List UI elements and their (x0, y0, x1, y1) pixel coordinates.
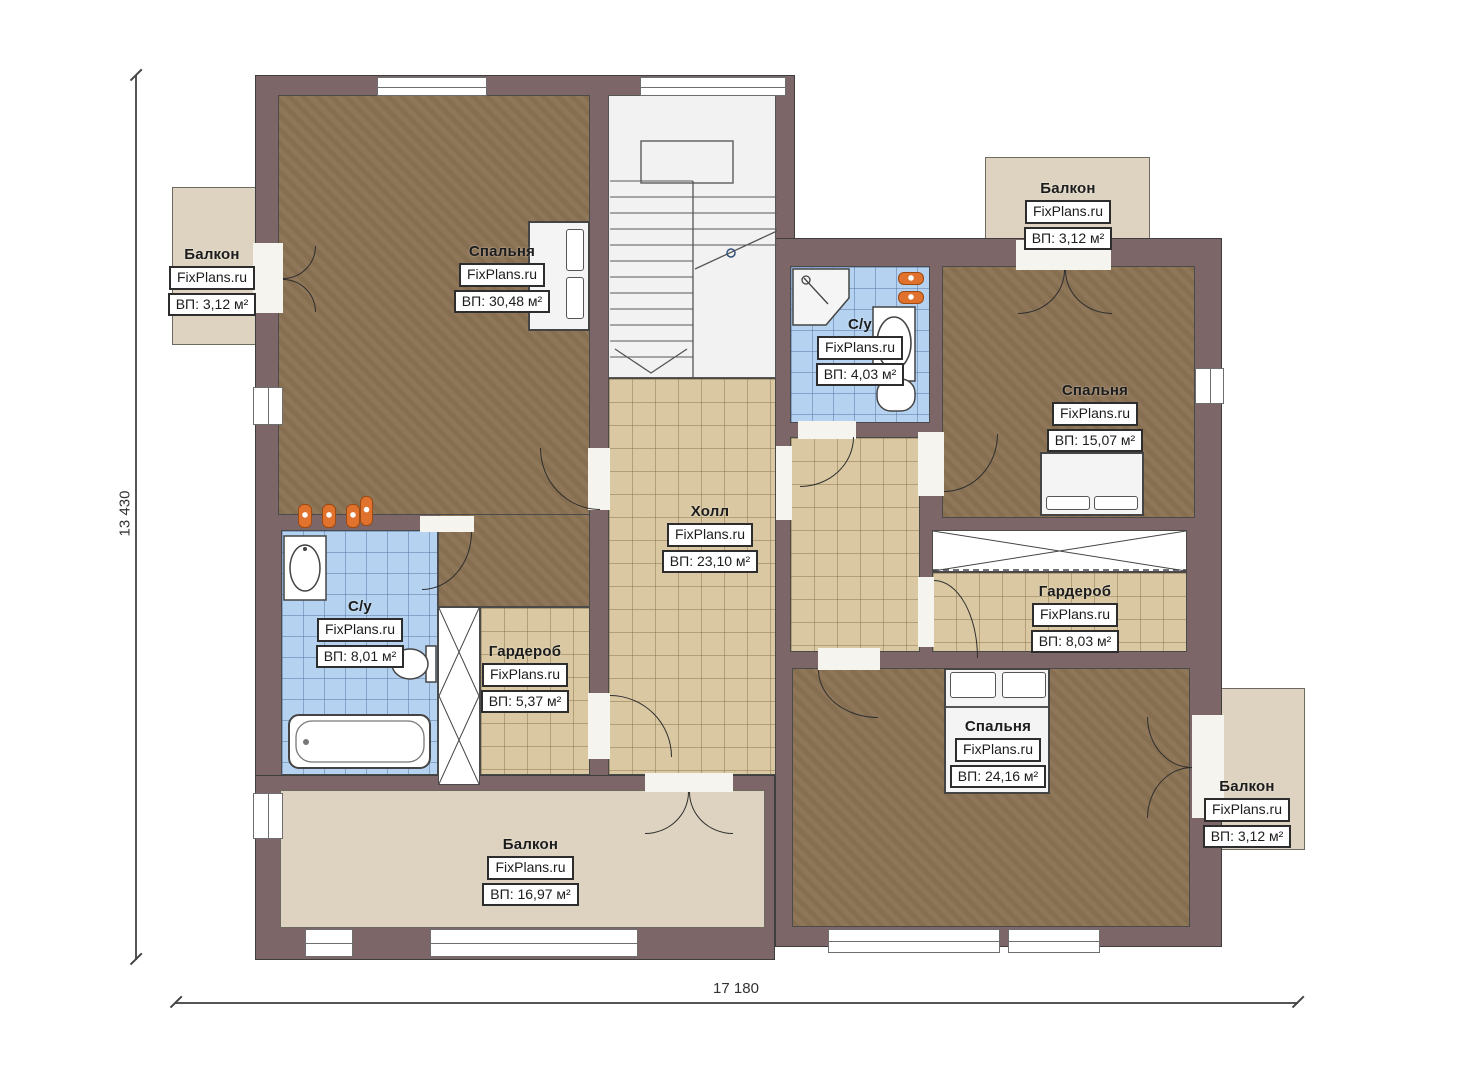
watermark: FixPlans.ru (1032, 603, 1118, 627)
dimension-height-label: 13 430 (117, 474, 134, 554)
towel-heater-icon (360, 496, 373, 526)
room-area: ВП: 23,10 м² (662, 550, 758, 574)
hall-passage-opening (776, 446, 792, 520)
room-name: Спальня (1035, 382, 1155, 399)
watermark: FixPlans.ru (1204, 798, 1290, 822)
dimension-line-horizontal (175, 1002, 1298, 1004)
room-area: ВП: 30,48 м² (454, 290, 550, 314)
pillow-icon (566, 229, 584, 271)
room-name: Холл (655, 503, 765, 520)
watermark: FixPlans.ru (817, 336, 903, 360)
room-name: Гардероб (470, 643, 580, 660)
room-name: С/у (800, 316, 920, 333)
bathroom-left-door-opening (420, 516, 474, 532)
room-area: ВП: 3,12 м² (1203, 825, 1292, 849)
room-label-balcony-top-right: Балкон FixPlans.ru ВП: 3,12 м² (1008, 180, 1128, 253)
window (377, 77, 487, 96)
room-name: Спальня (437, 243, 567, 260)
room-area: ВП: 24,16 м² (950, 765, 1046, 789)
room-area: ВП: 5,37 м² (481, 690, 570, 714)
closet-x-icon (933, 531, 1186, 571)
pillow-icon (566, 277, 584, 319)
room-label-bedroom-right: Спальня FixPlans.ru ВП: 15,07 м² (1035, 382, 1155, 455)
room-area: ВП: 4,03 м² (816, 363, 905, 387)
bathtub-icon (288, 714, 432, 770)
room-label-wardrobe-right: Гардероб FixPlans.ru ВП: 8,03 м² (1015, 583, 1135, 656)
room-name: Балкон (1192, 778, 1302, 795)
room-area: ВП: 3,12 м² (1024, 227, 1113, 251)
window (1008, 929, 1100, 953)
towel-heater-icon (898, 272, 924, 285)
bedroom-bottom-door-opening (818, 648, 880, 670)
watermark: FixPlans.ru (459, 263, 545, 287)
pillow-icon (1002, 672, 1046, 698)
watermark: FixPlans.ru (1025, 200, 1111, 224)
room-area: ВП: 3,12 м² (168, 293, 257, 317)
wardrobe-right-door-opening (918, 577, 934, 647)
towel-heater-icon (346, 504, 360, 528)
room-label-balcony-bottom-right: Балкон FixPlans.ru ВП: 3,12 м² (1192, 778, 1302, 851)
watermark: FixPlans.ru (317, 618, 403, 642)
blanket-line (946, 706, 1048, 708)
towel-heater-icon (898, 291, 924, 304)
bedroom-right-door-opening (918, 432, 944, 496)
sink-icon (283, 535, 327, 601)
pillow-icon (950, 672, 996, 698)
room-area: ВП: 16,97 м² (482, 883, 578, 907)
pillow-icon (1094, 496, 1138, 510)
room-label-balcony-left: Балкон FixPlans.ru ВП: 3,12 м² (152, 246, 272, 319)
window (430, 929, 638, 957)
window (305, 929, 353, 957)
watermark: FixPlans.ru (955, 738, 1041, 762)
room-label-bathroom-left: С/у FixPlans.ru ВП: 8,01 м² (305, 598, 415, 671)
room-name: Балкон (1008, 180, 1128, 197)
room-label-hall: Холл FixPlans.ru ВП: 23,10 м² (655, 503, 765, 576)
watermark: FixPlans.ru (667, 523, 753, 547)
room-area: ВП: 8,01 м² (316, 645, 405, 669)
room-name: Балкон (468, 836, 593, 853)
dimension-width-label: 17 180 (686, 980, 786, 997)
window (253, 793, 283, 839)
staircase (608, 95, 776, 378)
floor-plan: Спальня FixPlans.ru ВП: 30,48 м² С/у Fix… (0, 0, 1473, 1080)
room-label-bathroom-top: С/у FixPlans.ru ВП: 4,03 м² (800, 316, 920, 389)
watermark: FixPlans.ru (1052, 402, 1138, 426)
towel-heater-icon (322, 504, 336, 528)
room-label-bedroom-main: Спальня FixPlans.ru ВП: 30,48 м² (437, 243, 567, 316)
watermark: FixPlans.ru (487, 856, 573, 880)
wardrobe-small-door-opening (588, 693, 610, 759)
balcony-bottom-door-opening (645, 773, 733, 792)
room-name: С/у (305, 598, 415, 615)
room-area: ВП: 8,03 м² (1031, 630, 1120, 654)
room-name: Спальня (938, 718, 1058, 735)
pillow-icon (1046, 496, 1090, 510)
window (640, 77, 786, 96)
towel-heater-icon (298, 504, 312, 528)
room-label-balcony-bottom: Балкон FixPlans.ru ВП: 16,97 м² (468, 836, 593, 909)
watermark: FixPlans.ru (169, 266, 255, 290)
window (828, 929, 1000, 953)
room-area: ВП: 15,07 м² (1047, 429, 1143, 453)
watermark: FixPlans.ru (482, 663, 568, 687)
room-label-bedroom-bottom: Спальня FixPlans.ru ВП: 24,16 м² (938, 718, 1058, 791)
stairs-detail (609, 96, 777, 379)
window (253, 387, 283, 425)
room-name: Гардероб (1015, 583, 1135, 600)
dimension-line-vertical (135, 75, 137, 960)
room-name: Балкон (152, 246, 272, 263)
wardrobe-right-closet (932, 530, 1187, 572)
window (1195, 368, 1224, 404)
room-label-wardrobe-small: Гардероб FixPlans.ru ВП: 5,37 м² (470, 643, 580, 716)
